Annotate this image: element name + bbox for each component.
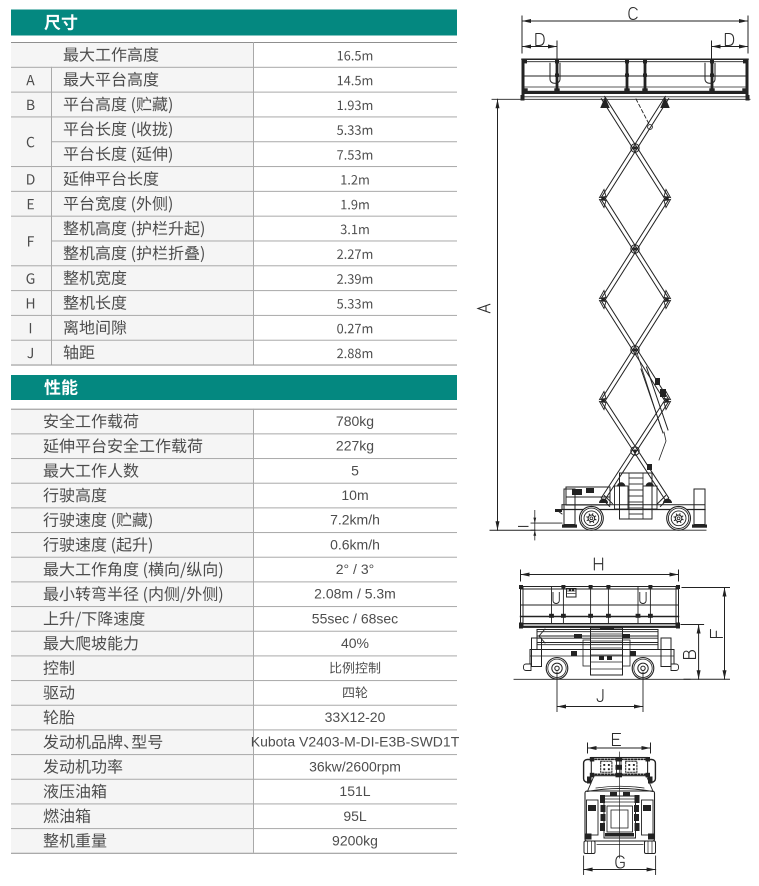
svg-text:0.6km/h: 0.6km/h [330,536,380,552]
svg-text:Kubota V2403-M-DI-E3B-SWD1T: Kubota V2403-M-DI-E3B-SWD1T [251,734,460,750]
svg-text:95L: 95L [343,808,367,824]
svg-text:2° / 3°: 2° / 3° [336,561,374,577]
svg-text:151L: 151L [339,783,370,799]
svg-text:227kg: 227kg [336,438,374,454]
svg-text:55sec / 68sec: 55sec / 68sec [312,610,398,626]
svg-text:36kw/2600rpm: 36kw/2600rpm [309,758,401,774]
svg-text:40%: 40% [341,635,369,651]
svg-text:33X12-20: 33X12-20 [325,709,386,725]
svg-text:10m: 10m [341,487,368,503]
svg-text:9200kg: 9200kg [332,832,378,848]
svg-text:7.2km/h: 7.2km/h [330,512,380,528]
svg-text:780kg: 780kg [336,413,374,429]
svg-text:2.08m / 5.3m: 2.08m / 5.3m [314,586,396,602]
svg-text:5: 5 [351,462,359,478]
